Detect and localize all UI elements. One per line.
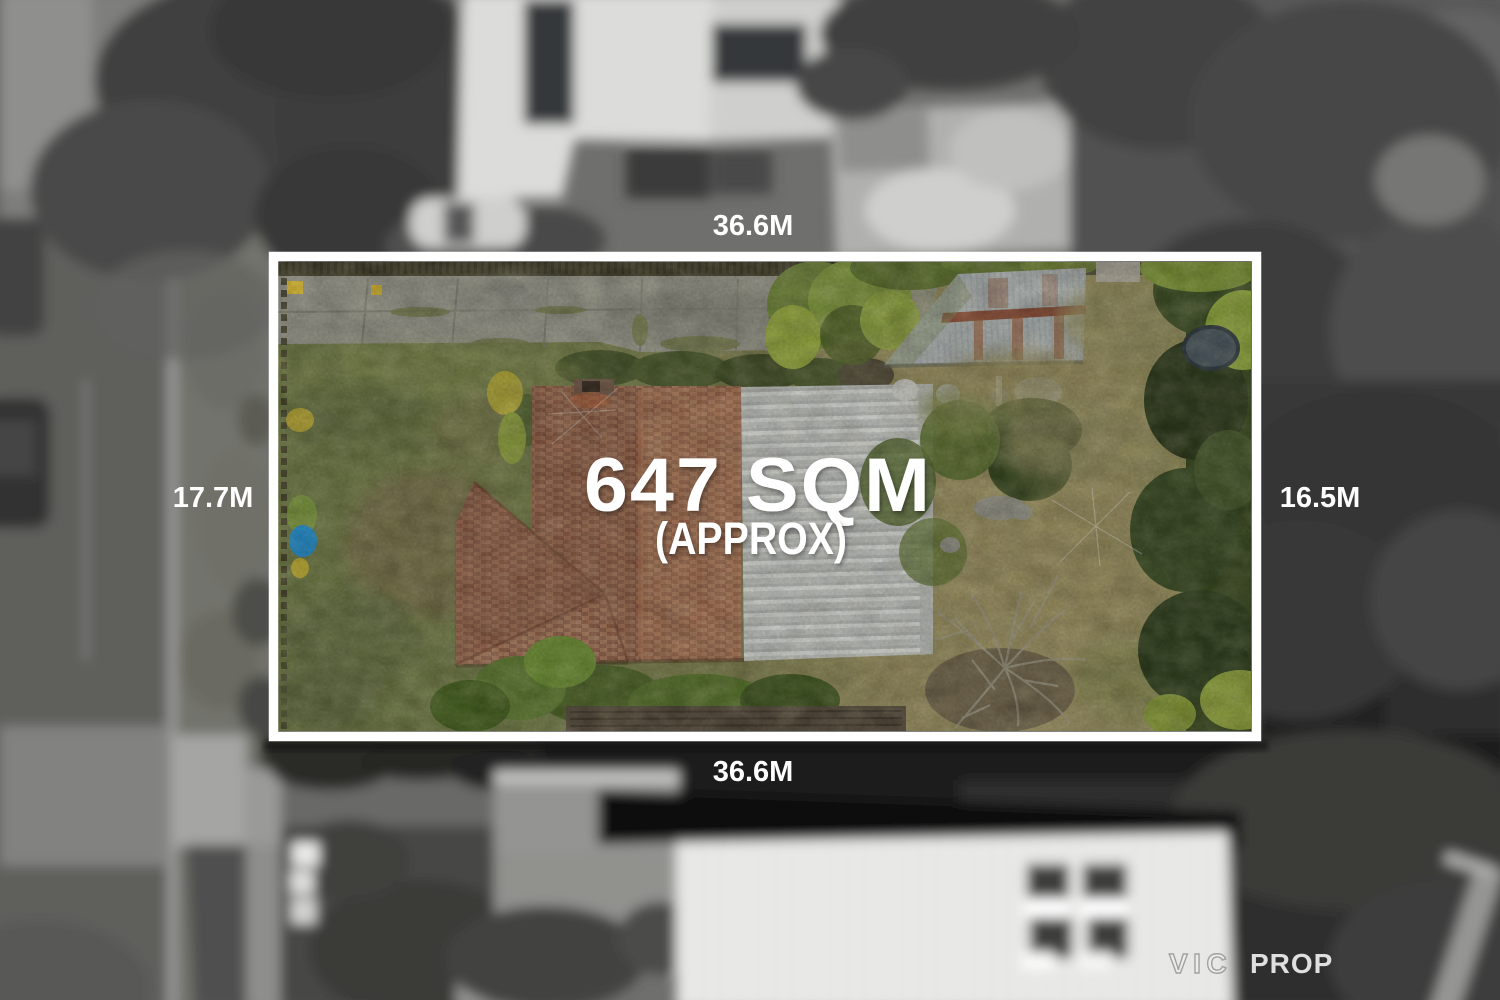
svg-text:VIC: VIC: [1169, 948, 1232, 979]
svg-text:(APPROX): (APPROX): [655, 513, 847, 564]
svg-text:PROP: PROP: [1250, 948, 1333, 979]
svg-text:36.6M: 36.6M: [713, 210, 794, 242]
svg-text:16.5M: 16.5M: [1280, 482, 1361, 514]
svg-text:17.7M: 17.7M: [173, 482, 254, 514]
svg-text:36.6M: 36.6M: [713, 756, 794, 788]
